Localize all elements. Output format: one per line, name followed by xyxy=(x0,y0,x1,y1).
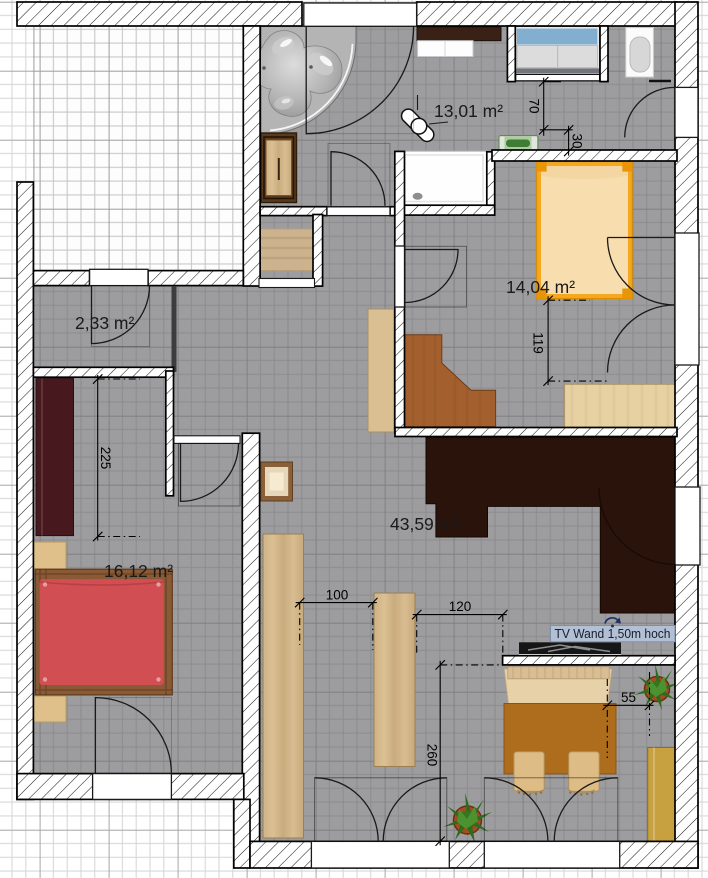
svg-text:2,33 m²: 2,33 m² xyxy=(75,313,134,333)
svg-text:16,12 m²: 16,12 m² xyxy=(104,561,173,581)
svg-text:120: 120 xyxy=(449,599,472,614)
svg-text:70: 70 xyxy=(527,98,542,113)
svg-text:13,01 m²: 13,01 m² xyxy=(434,101,503,121)
svg-text:14,04 m²: 14,04 m² xyxy=(506,277,575,297)
svg-text:55: 55 xyxy=(621,690,636,705)
svg-text:225: 225 xyxy=(98,447,113,470)
svg-text:100: 100 xyxy=(326,588,349,603)
svg-text:260: 260 xyxy=(425,744,440,767)
svg-text:TV Wand 1,50m hoch: TV Wand 1,50m hoch xyxy=(555,626,671,641)
svg-text:43,59 m²: 43,59 m² xyxy=(390,514,459,534)
svg-text:30: 30 xyxy=(570,133,585,148)
svg-text:119: 119 xyxy=(531,332,546,354)
